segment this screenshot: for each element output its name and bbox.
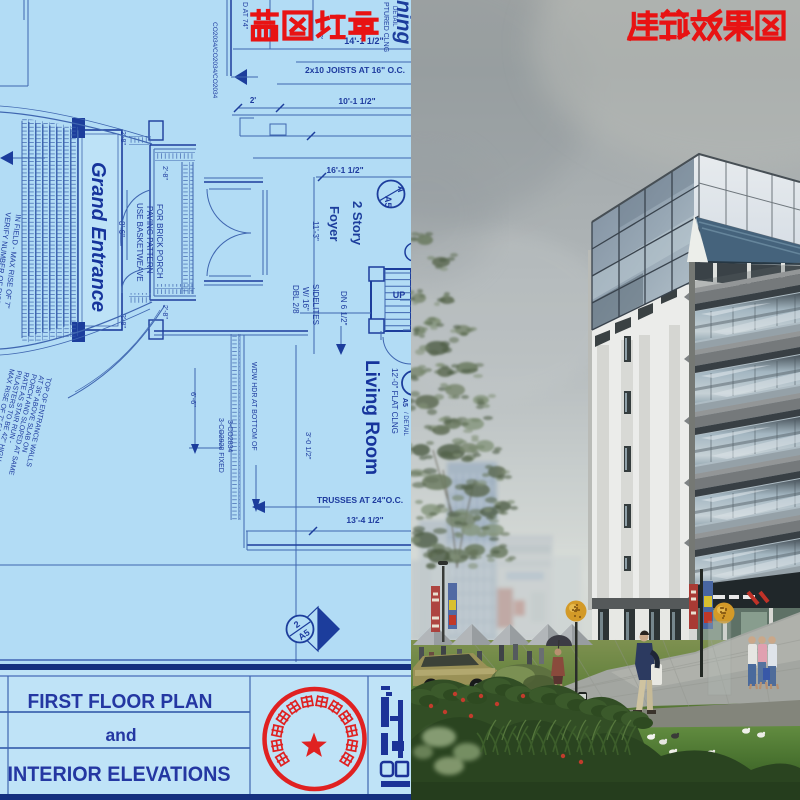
svg-text:6'-6": 6'-6" bbox=[189, 392, 198, 407]
svg-text:16'-1 1/2": 16'-1 1/2" bbox=[326, 165, 363, 175]
svg-text:DN 6 1/2": DN 6 1/2" bbox=[339, 291, 348, 326]
svg-text:UP: UP bbox=[393, 290, 406, 300]
svg-text:and: and bbox=[105, 725, 136, 745]
svg-text:12'-0" FLAT CLNG: 12'-0" FLAT CLNG bbox=[390, 368, 399, 434]
svg-text:Grand Entrance: Grand Entrance bbox=[87, 162, 109, 312]
svg-text:11'-3": 11'-3" bbox=[311, 221, 320, 241]
svg-text:2'-8": 2'-8" bbox=[161, 305, 168, 319]
svg-text:FIRST FLOOR PLAN: FIRST FLOOR PLAN bbox=[28, 690, 213, 713]
svg-text:/ DETAIL: / DETAIL bbox=[402, 412, 408, 437]
svg-text:TRUSSES AT 24"O.C.: TRUSSES AT 24"O.C. bbox=[317, 495, 403, 505]
svg-text:3-CO2834: 3-CO2834 bbox=[226, 420, 233, 452]
svg-text:FOR BRICK PORCH: FOR BRICK PORCH bbox=[155, 204, 164, 279]
svg-text:PTURED CLNG: PTURED CLNG bbox=[382, 2, 389, 52]
svg-text:Foyer: Foyer bbox=[327, 206, 342, 241]
svg-text:A: A bbox=[396, 186, 406, 193]
svg-text:WDW HDR AT BOTTOM OF: WDW HDR AT BOTTOM OF bbox=[250, 362, 257, 451]
svg-text:A5: A5 bbox=[383, 196, 393, 208]
svg-text:INTERIOR ELEVATIONS: INTERIOR ELEVATIONS bbox=[8, 762, 231, 786]
svg-text:CO2034/CO2034/CO2034: CO2034/CO2034/CO2034 bbox=[211, 22, 218, 99]
svg-text:2'-8": 2'-8" bbox=[161, 166, 168, 180]
svg-text:PAVING PATTERN: PAVING PATTERN bbox=[145, 206, 154, 274]
svg-text:W/ 16": W/ 16" bbox=[301, 287, 310, 311]
svg-text:2 Story: 2 Story bbox=[350, 201, 365, 246]
svg-text:SIDELITES: SIDELITES bbox=[311, 284, 320, 325]
svg-text:DBL 2/8: DBL 2/8 bbox=[291, 285, 300, 314]
svg-text:2x10 JOISTS AT 16" O.C.: 2x10 JOISTS AT 16" O.C. bbox=[305, 65, 405, 75]
svg-text:13'-4 1/2": 13'-4 1/2" bbox=[346, 515, 383, 525]
svg-text:A5: A5 bbox=[401, 398, 408, 407]
svg-text:ning: ning bbox=[392, 0, 411, 44]
svg-text:3-CO2928 FIXED: 3-CO2928 FIXED bbox=[217, 418, 224, 473]
svg-text:10'-1 1/2": 10'-1 1/2" bbox=[338, 96, 375, 106]
svg-text:D AT 74": D AT 74" bbox=[241, 2, 248, 30]
svg-text:Living Room: Living Room bbox=[361, 360, 382, 475]
svg-text:2'-8": 2'-8" bbox=[119, 131, 126, 145]
svg-text:2': 2' bbox=[250, 96, 256, 105]
svg-text:3'-0 1/2": 3'-0 1/2" bbox=[304, 432, 313, 460]
